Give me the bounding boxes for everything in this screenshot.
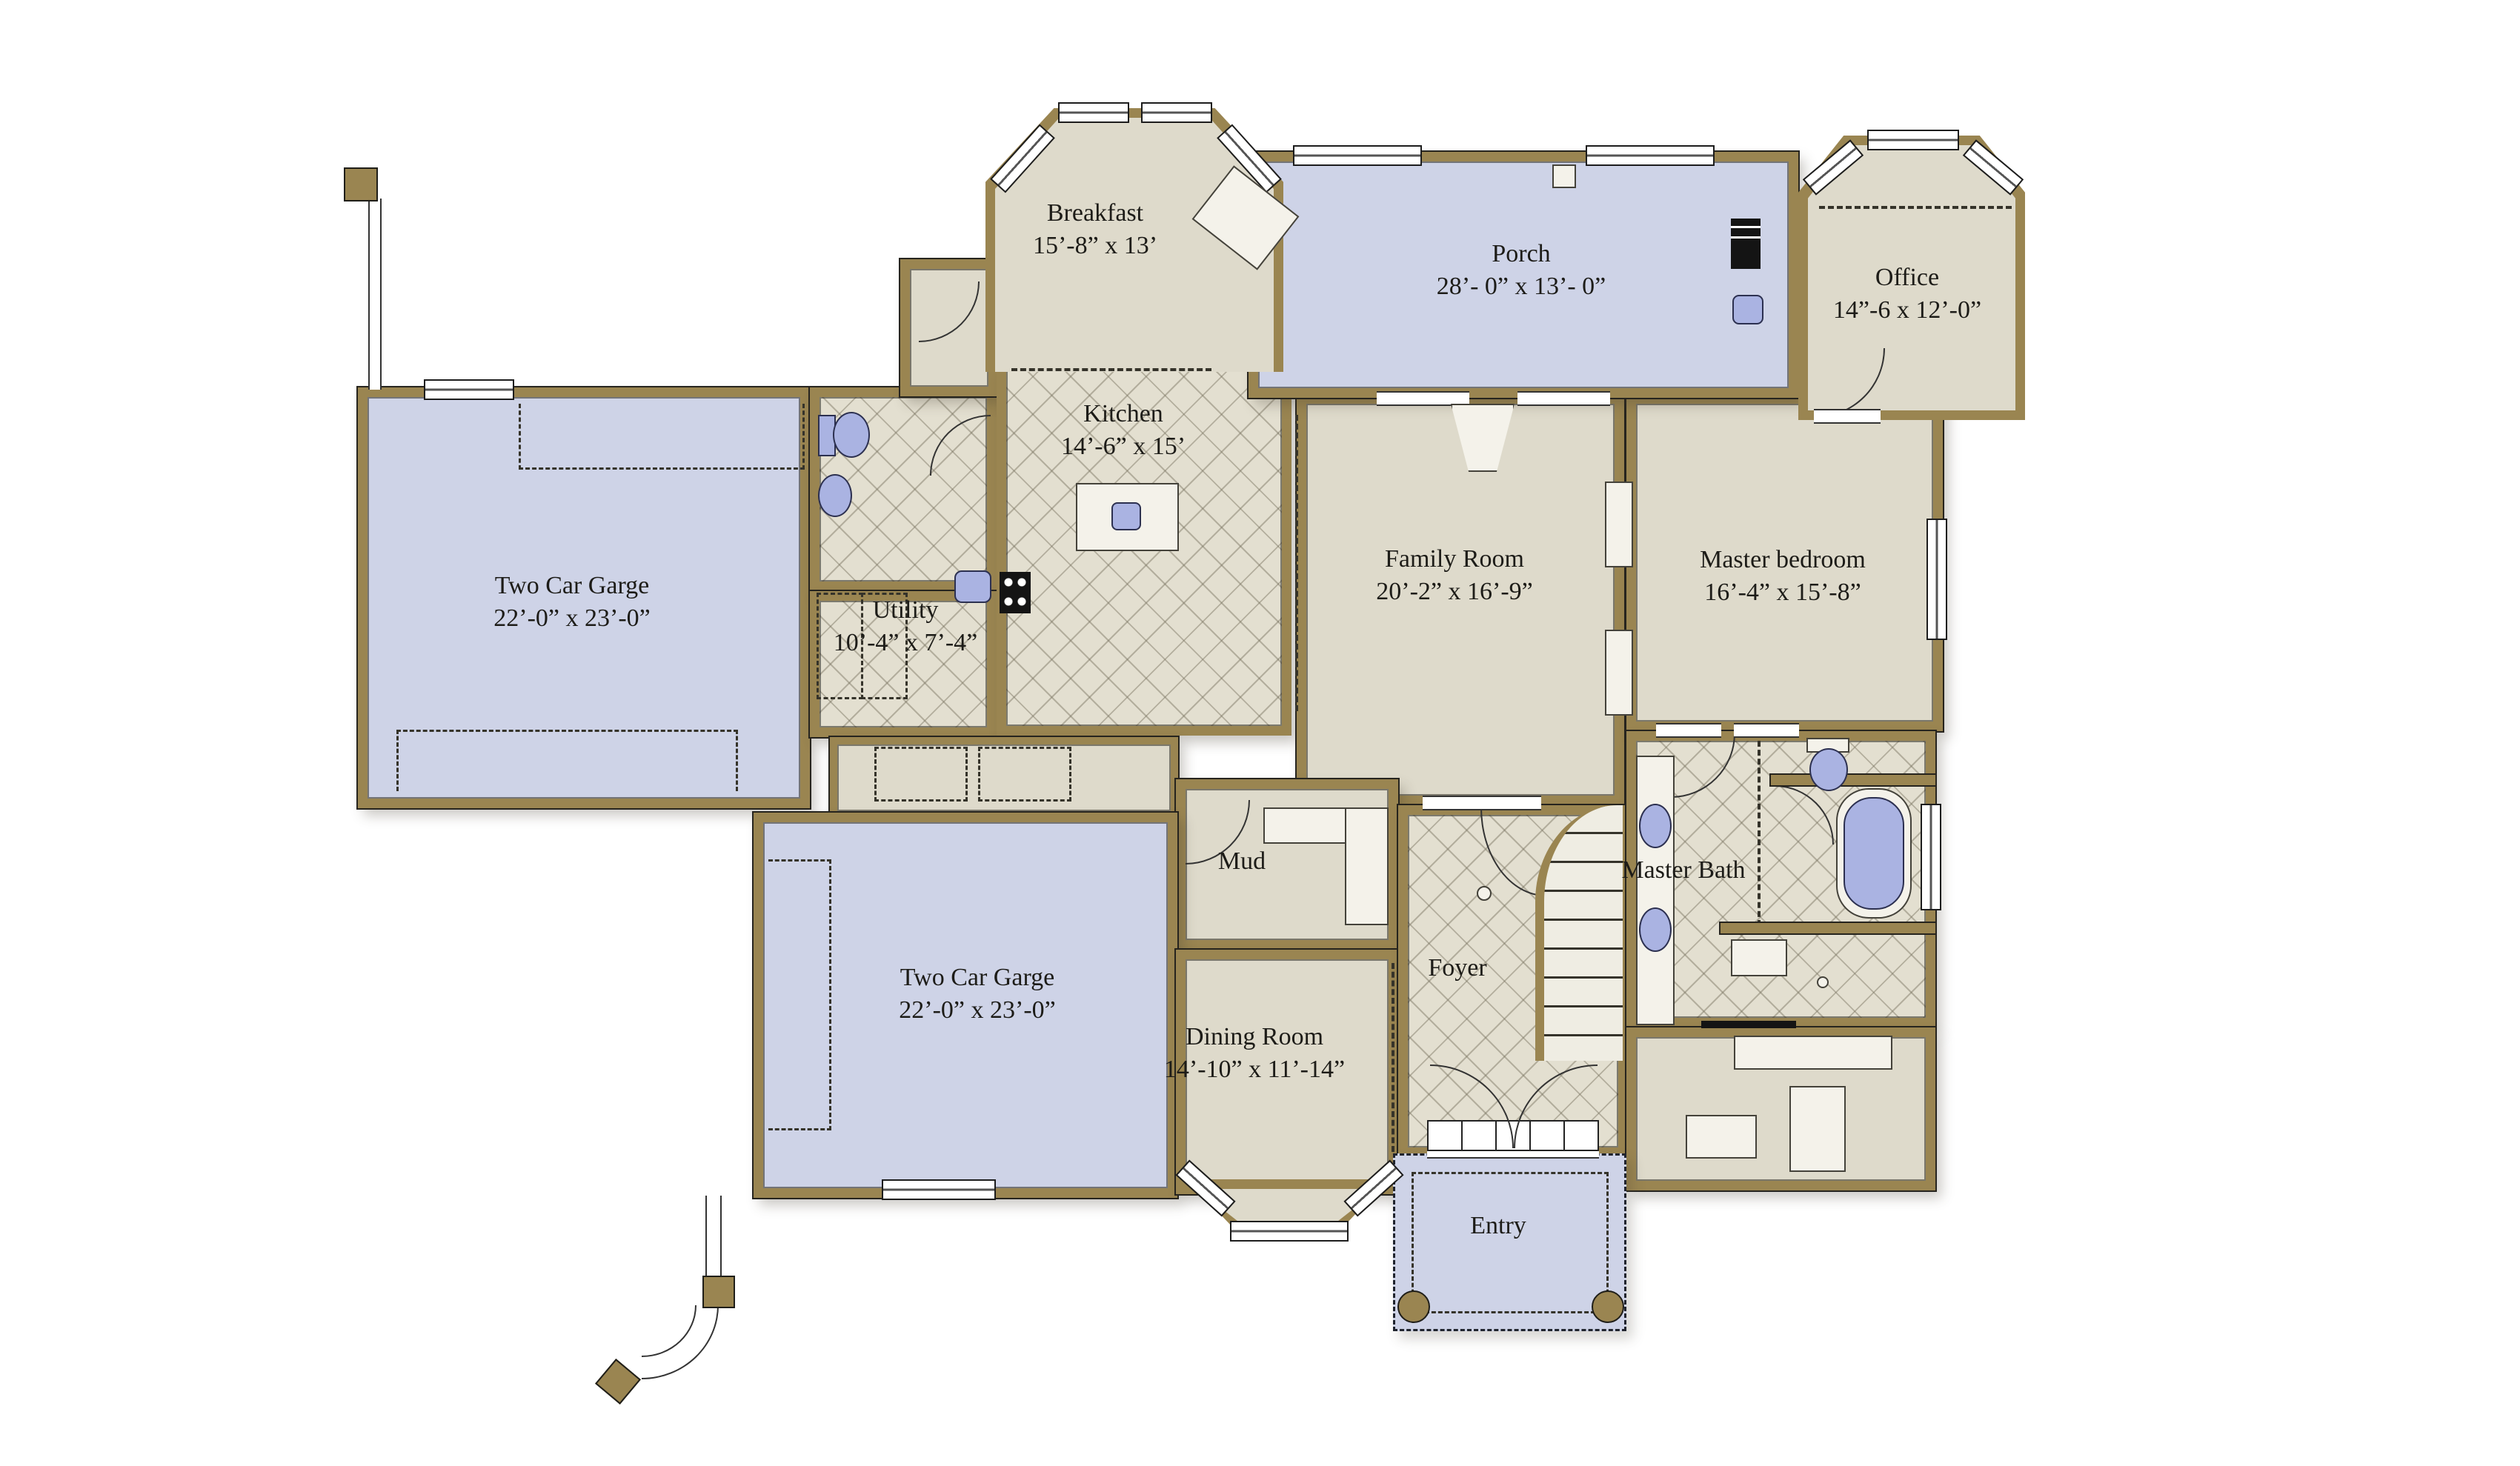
wc-toilet-bowl [1809, 748, 1848, 791]
yard-post [344, 167, 378, 201]
mud-hall-cubby-a [874, 747, 968, 802]
walk-post-end [595, 1359, 641, 1405]
walk-post-mid [702, 1276, 735, 1308]
walk-wall-stub [705, 1196, 722, 1277]
master-bedroom-door-gap-b [1734, 723, 1799, 738]
master-bedroom-window [1926, 519, 1947, 640]
garage-upper-door-recess [519, 404, 805, 470]
label-dining-room: Dining Room14’-10” x 11’-14” [1164, 1021, 1345, 1086]
office-bay-dashed-line [1819, 206, 2012, 209]
label-master-bedroom: Master bedroom16’-4” x 15’-8” [1700, 544, 1866, 609]
mud-bench-side [1345, 807, 1389, 925]
master-bedroom-door-gap-a [1656, 723, 1721, 738]
breakfast-bay-window-top-b [1141, 102, 1212, 123]
kitchen-range-icon [1000, 572, 1031, 613]
label-family-room: Family Room20’-2” x 16’-9” [1376, 543, 1532, 608]
label-porch: Porch28’- 0” x 13’- 0” [1437, 238, 1606, 303]
master-bath-dashed-line [1758, 741, 1761, 926]
tub-window [1921, 804, 1941, 910]
label-breakfast: Breakfast15’-8” x 13’ [1033, 197, 1157, 262]
label-entry: Entry [1470, 1210, 1526, 1242]
garage-lower-window [882, 1179, 996, 1200]
powder-sink [818, 474, 852, 517]
bath-vanity [1636, 756, 1675, 1025]
kitchen-breakfast-dashed-opening [1011, 368, 1211, 371]
floor-plan: Breakfast15’-8” x 13’ Porch28’- 0” x 13’… [0, 0, 2520, 1466]
closet-rod [1701, 1021, 1796, 1028]
entry-inner-dashed [1412, 1172, 1609, 1313]
bath-sink-b [1639, 907, 1672, 952]
family-foyer-opening [1423, 796, 1541, 810]
shower-seat [1731, 939, 1787, 976]
label-utility: Utility10’-4” x 7’-4” [834, 594, 977, 659]
porch-sink [1732, 295, 1763, 324]
bath-wc-wall [1771, 775, 1935, 785]
closet-cabinet-b [1789, 1086, 1846, 1172]
office-door-gap [1814, 409, 1881, 424]
breakfast-bay-window-top-a [1058, 102, 1129, 123]
porch-family-opening-right [1517, 391, 1610, 406]
porch-window-left [1293, 145, 1422, 166]
family-wall-niche-a [1605, 482, 1633, 567]
closet-cabinet-a [1734, 1036, 1892, 1070]
dining-bay-window-center [1230, 1221, 1349, 1242]
mud-hall-cubby-b [978, 747, 1071, 802]
garage-upper-window [424, 379, 514, 400]
entry-column-right [1592, 1290, 1624, 1323]
label-garage-upper: Two Car Garge22’-0” x 23’-0” [493, 570, 650, 635]
closet-cabinet-c [1686, 1115, 1757, 1159]
kitchen-family-dashed-opening [1295, 415, 1298, 711]
porch-grill-icon [1731, 219, 1761, 269]
label-kitchen: Kitchen14’-6” x 15’ [1061, 398, 1186, 463]
powder-toilet-bowl [833, 412, 870, 458]
bath-shower-wall [1721, 923, 1935, 933]
kitchen-island-sink [1111, 502, 1141, 530]
label-foyer: Foyer [1428, 952, 1486, 984]
porch-post-base [1552, 164, 1576, 188]
office-bay-window-top [1867, 130, 1959, 150]
entry-column-left [1397, 1290, 1430, 1323]
dining-foyer-dashed-opening [1392, 963, 1394, 1152]
stair-newel [1477, 886, 1492, 901]
garage-lower-door-recess [768, 859, 831, 1130]
label-mud: Mud [1218, 845, 1266, 878]
shower-drain [1817, 976, 1829, 988]
family-wall-niche-b [1605, 630, 1633, 716]
label-office: Office14”-6 x 12’-0” [1833, 261, 1981, 327]
bath-sink-a [1639, 804, 1672, 848]
fence-line [368, 199, 382, 390]
label-master-bath: Master Bath [1621, 854, 1745, 887]
porch-window-right [1586, 145, 1715, 166]
label-garage-lower: Two Car Garge22’-0” x 23’-0” [899, 962, 1055, 1027]
garage-upper-apron-dashed [396, 730, 738, 791]
bath-tub [1844, 797, 1904, 910]
